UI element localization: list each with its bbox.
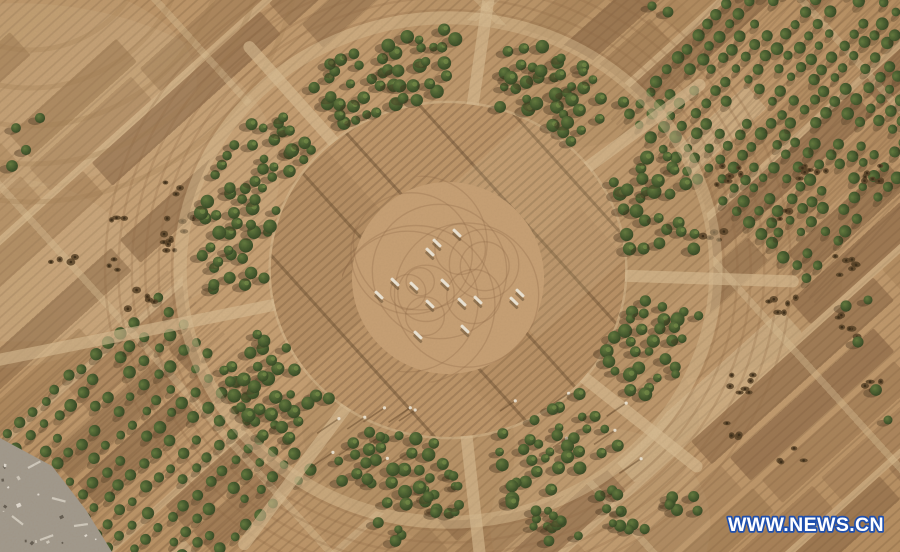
- aerial-photo-canvas: WWW.NEWS.CN: [0, 0, 900, 552]
- aerial-photo: WWW.NEWS.CN: [0, 0, 900, 552]
- news-watermark: WWW.NEWS.CN: [728, 514, 884, 536]
- photo-grain-layer: [0, 0, 900, 552]
